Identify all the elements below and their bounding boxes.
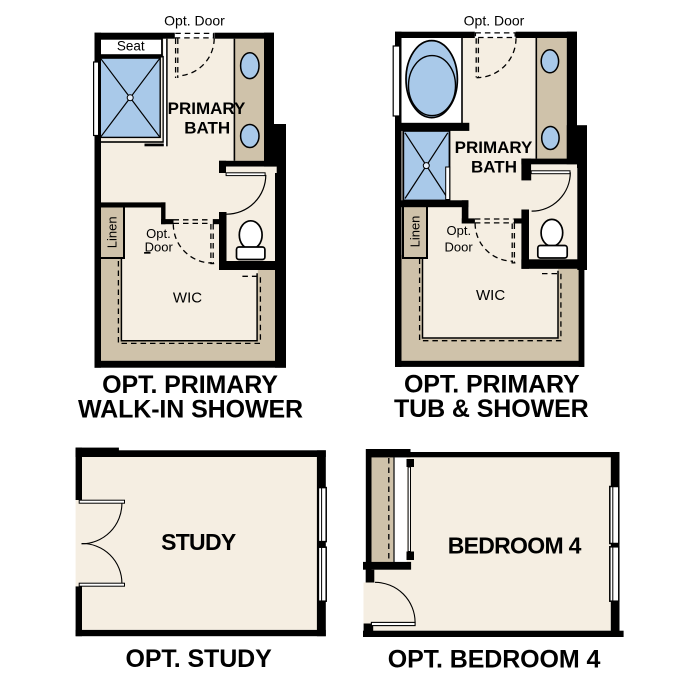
svg-text:STUDY: STUDY [161,529,236,555]
svg-text:OPT. STUDY: OPT. STUDY [125,645,272,673]
svg-text:BATH: BATH [184,119,230,138]
svg-text:Seat: Seat [117,38,145,53]
svg-text:PRIMARY: PRIMARY [455,138,533,157]
svg-text:Opt.: Opt. [447,223,472,238]
svg-text:BATH: BATH [471,158,517,177]
svg-text:Opt.: Opt. [146,226,171,241]
svg-text:Opt. Door: Opt. Door [464,13,525,29]
svg-text:BEDROOM 4: BEDROOM 4 [448,533,582,559]
svg-text:Linen: Linen [408,216,423,248]
svg-text:Door: Door [445,240,474,255]
svg-text:PRIMARY: PRIMARY [168,99,246,118]
svg-text:TUB & SHOWER: TUB & SHOWER [394,395,589,423]
svg-text:Opt. Door: Opt. Door [164,13,225,29]
svg-text:WALK-IN SHOWER: WALK-IN SHOWER [78,396,303,424]
svg-text:OPT. BEDROOM 4: OPT. BEDROOM 4 [388,646,601,674]
svg-text:WIC: WIC [476,287,505,304]
svg-text:Linen: Linen [105,216,120,248]
svg-text:WIC: WIC [173,290,202,307]
